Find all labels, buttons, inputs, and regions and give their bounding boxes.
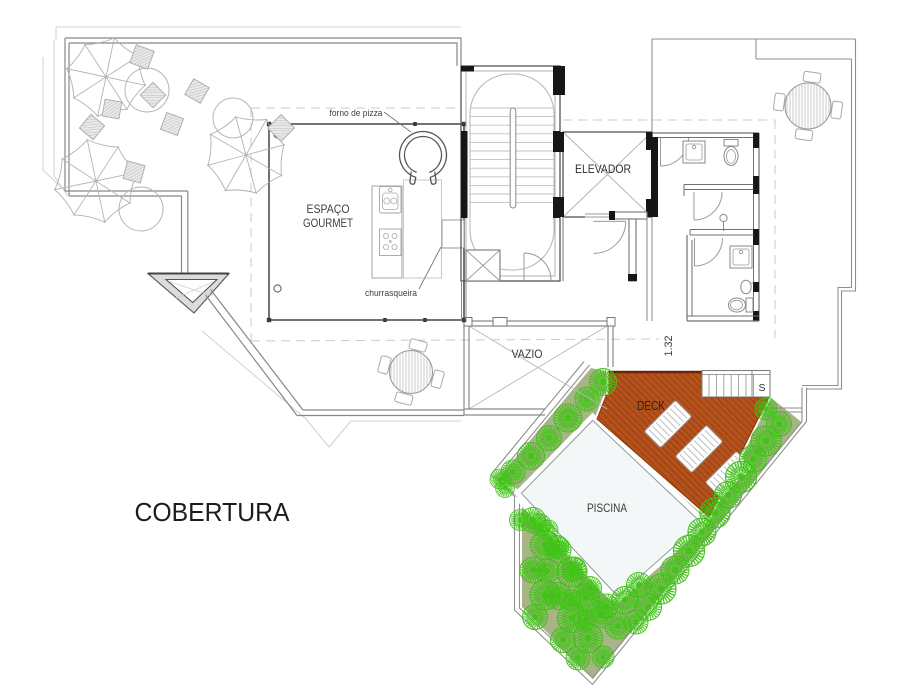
svg-text:DECK: DECK — [637, 398, 665, 413]
svg-text:ELEVADOR: ELEVADOR — [575, 164, 631, 176]
svg-text:S: S — [758, 382, 765, 394]
svg-text:forno de pizza: forno de pizza — [330, 108, 384, 119]
svg-text:VAZIO: VAZIO — [512, 349, 543, 361]
svg-text:GOURMET: GOURMET — [303, 216, 354, 230]
svg-text:churrasqueira: churrasqueira — [365, 288, 418, 299]
svg-text:COBERTURA: COBERTURA — [135, 497, 291, 527]
svg-text:ESPAÇO: ESPAÇO — [307, 202, 350, 216]
svg-text:PISCINA: PISCINA — [587, 503, 627, 515]
svg-text:1.32: 1.32 — [663, 336, 675, 357]
